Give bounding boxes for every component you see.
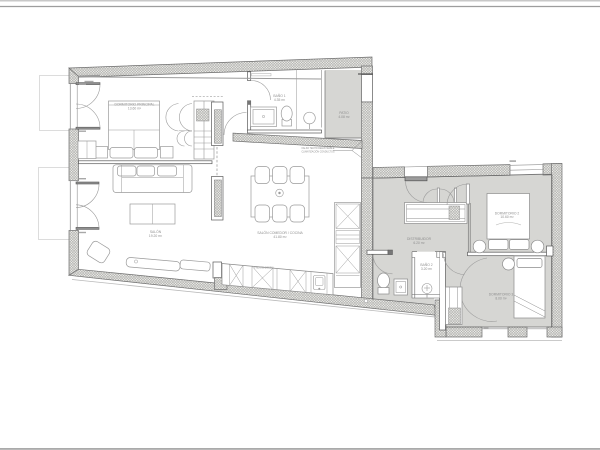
svg-text:4.35 m²: 4.35 m²: [274, 98, 286, 102]
svg-text:10.60 m²: 10.60 m²: [500, 215, 514, 219]
svg-text:3.20 m²: 3.20 m²: [421, 267, 433, 271]
svg-text:CLIMATIZACIÓN CONDUCTOS: CLIMATIZACIÓN CONDUCTOS: [302, 151, 335, 154]
svg-text:4.08 m²: 4.08 m²: [338, 115, 350, 119]
svg-text:19.20 m²: 19.20 m²: [149, 234, 163, 238]
svg-text:8.00 m²: 8.00 m²: [495, 297, 507, 301]
svg-text:6.20 m²: 6.20 m²: [413, 241, 425, 245]
svg-text:FRENTE COCINA: FRENTE COCINA: [254, 267, 274, 270]
svg-text:13.60 m²: 13.60 m²: [128, 107, 142, 111]
svg-text:FALSO TECHO REGISTRABLE: FALSO TECHO REGISTRABLE: [302, 147, 335, 150]
svg-text:41.80 m²: 41.80 m²: [273, 235, 287, 239]
